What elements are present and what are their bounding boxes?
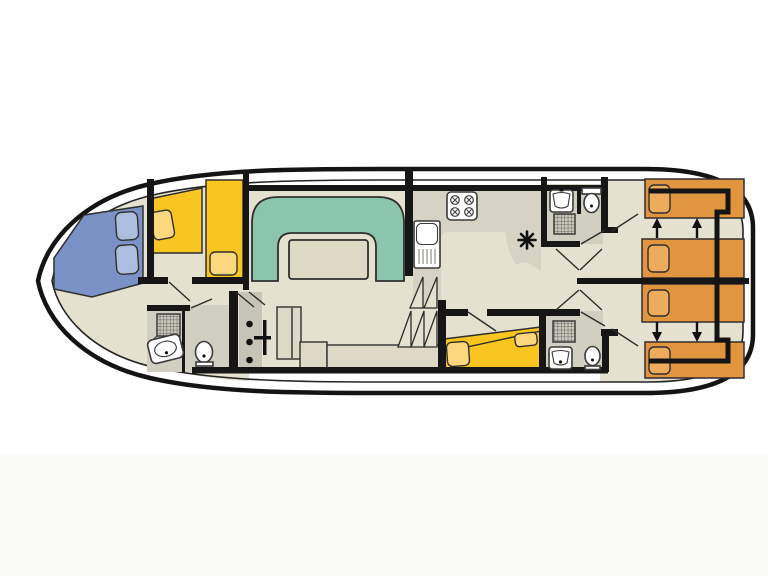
bench-long bbox=[327, 345, 439, 368]
pillow bbox=[648, 245, 669, 272]
sink-drainer-icon bbox=[414, 221, 440, 268]
washbasin-icon bbox=[549, 347, 572, 369]
step-dot bbox=[246, 339, 253, 346]
saloon-table bbox=[289, 240, 368, 279]
step-dot bbox=[246, 357, 253, 364]
pillow bbox=[210, 252, 237, 275]
shower-grid-icon bbox=[554, 214, 575, 234]
pillow bbox=[446, 341, 470, 366]
step-dot bbox=[246, 321, 253, 328]
pillow bbox=[115, 211, 139, 240]
shower-grid-icon bbox=[553, 321, 575, 342]
sideboard bbox=[277, 307, 301, 359]
floor-plan-canvas bbox=[0, 0, 768, 576]
pillow bbox=[115, 244, 139, 274]
heater-asterisk-icon bbox=[519, 232, 536, 249]
toilet-icon bbox=[196, 342, 214, 367]
boat-floor-plan bbox=[0, 0, 768, 576]
pillow bbox=[514, 332, 537, 347]
washbasin-icon bbox=[550, 189, 573, 213]
pillow bbox=[648, 290, 669, 316]
helm-crossbar bbox=[254, 336, 271, 340]
toilet-icon bbox=[582, 188, 601, 213]
bench-step bbox=[300, 342, 327, 368]
stove-burners-icon bbox=[447, 192, 477, 220]
shower-grid-icon bbox=[157, 314, 180, 336]
toilet-icon bbox=[585, 347, 600, 370]
